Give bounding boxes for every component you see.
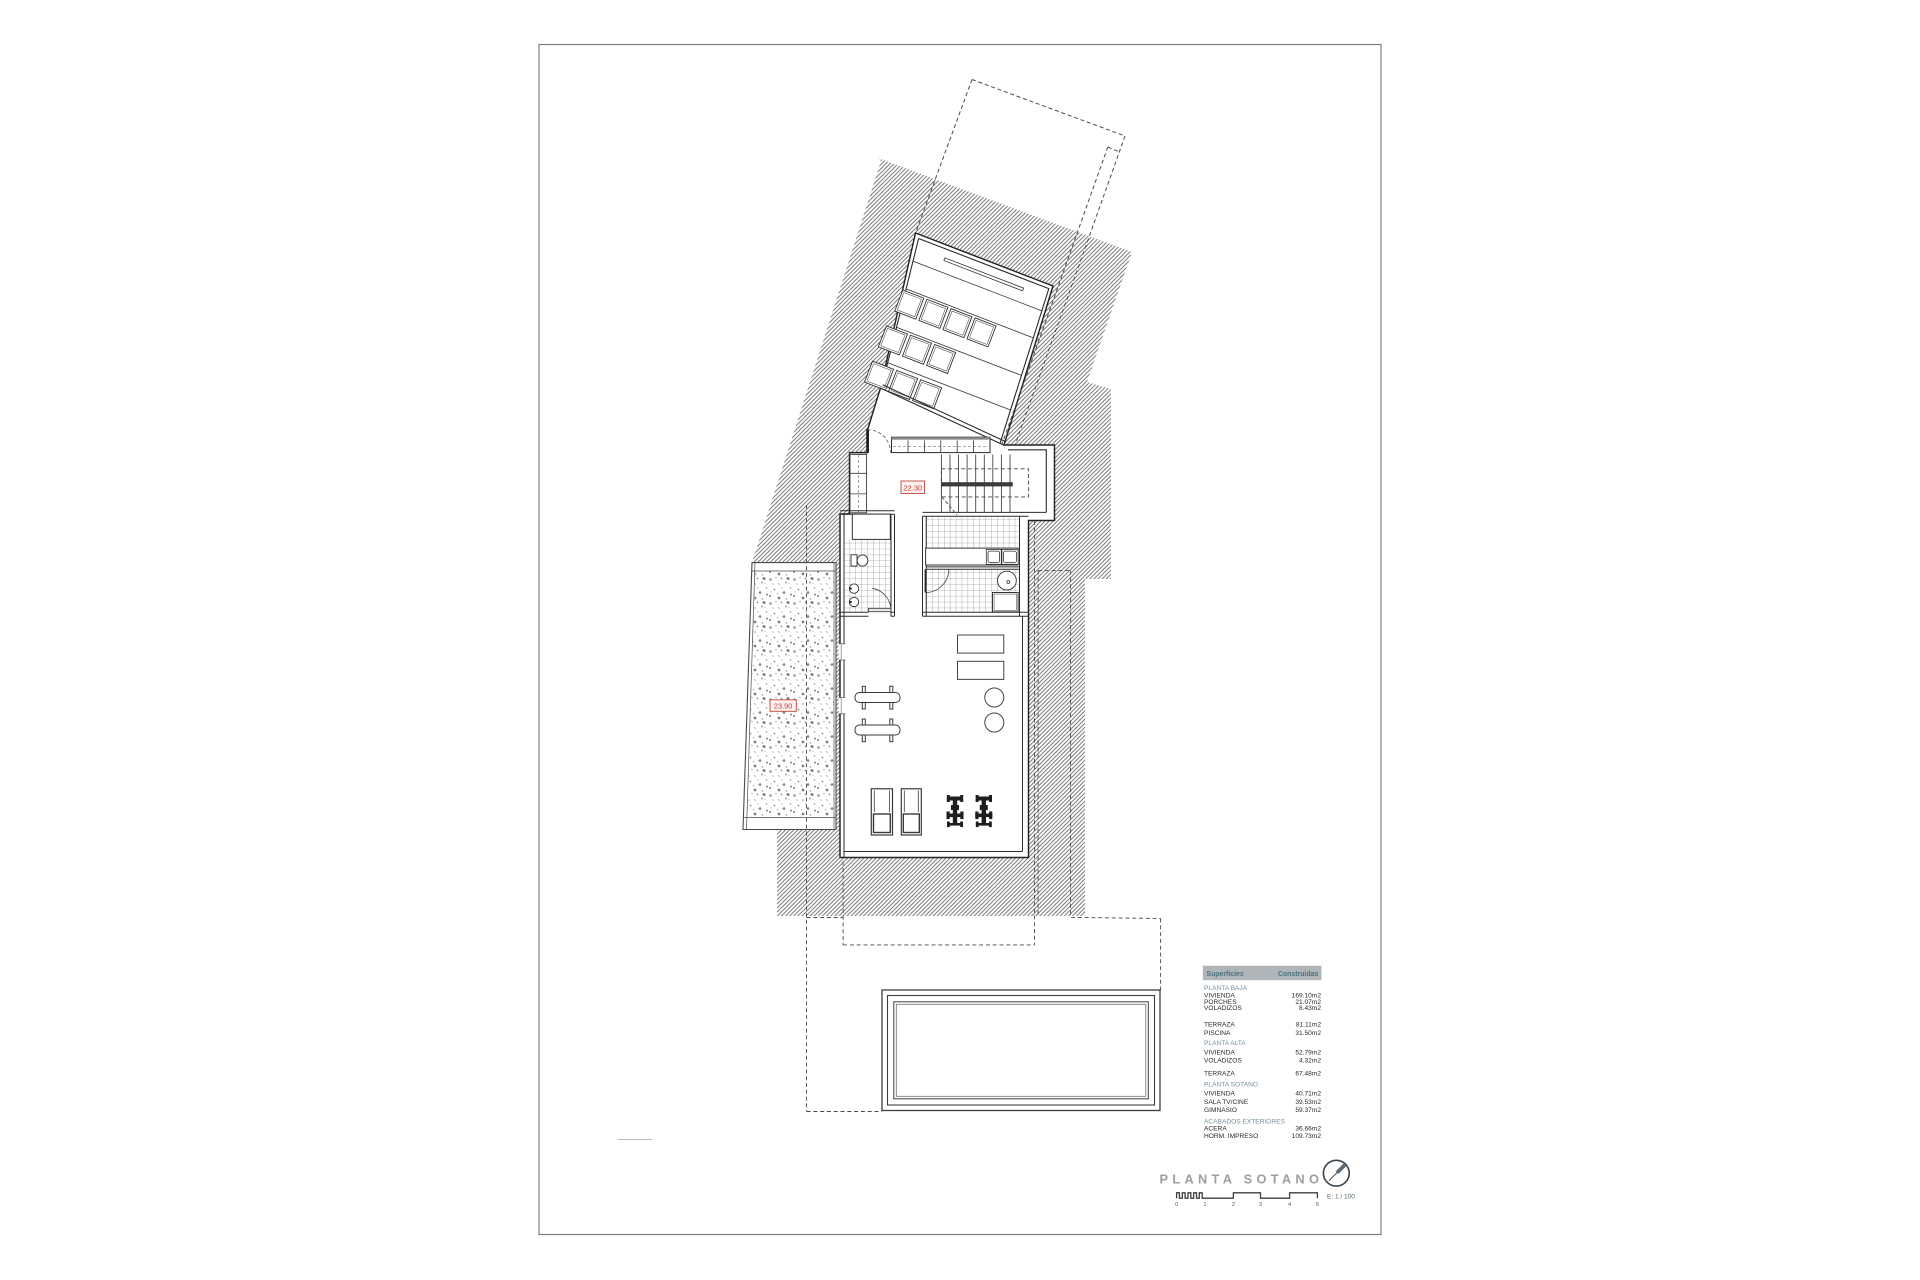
svg-text:SALA TV/CINE: SALA TV/CINE <box>1204 1099 1249 1106</box>
svg-text:VIVIENDA: VIVIENDA <box>1204 1050 1235 1057</box>
svg-text:Superficies: Superficies <box>1207 971 1244 978</box>
svg-text:52.79m2: 52.79m2 <box>1295 1050 1321 1057</box>
svg-text:2: 2 <box>1232 1202 1235 1208</box>
svg-text:VIVIENDA: VIVIENDA <box>1204 1090 1235 1097</box>
svg-text:1: 1 <box>1203 1202 1206 1208</box>
svg-text:PLANTA SOTANO: PLANTA SOTANO <box>1160 1172 1324 1187</box>
svg-text:ACABADOS EXTERIORES: ACABADOS EXTERIORES <box>1204 1118 1286 1125</box>
svg-text:22.30: 22.30 <box>904 483 923 492</box>
svg-text:E: 1 / 100: E: 1 / 100 <box>1327 1194 1355 1201</box>
svg-text:39.53m2: 39.53m2 <box>1295 1099 1321 1106</box>
svg-text:67.48m2: 67.48m2 <box>1295 1071 1321 1078</box>
svg-text:0: 0 <box>1175 1202 1178 1208</box>
svg-text:VOLADIZOS: VOLADIZOS <box>1204 1005 1242 1012</box>
svg-text:GIMNASIO: GIMNASIO <box>1204 1107 1237 1114</box>
svg-text:36.66m2: 36.66m2 <box>1295 1126 1321 1133</box>
svg-text:40.71m2: 40.71m2 <box>1295 1090 1321 1097</box>
svg-text:VOLADIZOS: VOLADIZOS <box>1204 1058 1242 1065</box>
svg-text:PISCINA: PISCINA <box>1204 1030 1231 1037</box>
svg-text:4.32m2: 4.32m2 <box>1299 1058 1321 1065</box>
svg-text:Construidas: Construidas <box>1278 971 1318 978</box>
svg-text:TERRAZA: TERRAZA <box>1204 1021 1235 1028</box>
svg-text:TERRAZA: TERRAZA <box>1204 1071 1235 1078</box>
svg-text:31.50m2: 31.50m2 <box>1295 1030 1321 1037</box>
svg-text:59.37m2: 59.37m2 <box>1295 1107 1321 1114</box>
svg-text:8.43m2: 8.43m2 <box>1299 1005 1321 1012</box>
svg-text:109.73m2: 109.73m2 <box>1292 1133 1322 1140</box>
svg-text:4: 4 <box>1288 1202 1291 1208</box>
svg-text:PLANTA SOTANO: PLANTA SOTANO <box>1204 1081 1258 1088</box>
svg-text:HORM. IMPRESO: HORM. IMPRESO <box>1204 1133 1258 1140</box>
svg-text:81.11m2: 81.11m2 <box>1296 1021 1322 1028</box>
svg-text:ACERA: ACERA <box>1204 1126 1227 1133</box>
svg-text:3: 3 <box>1259 1202 1262 1208</box>
svg-text:PLANTA ALTA: PLANTA ALTA <box>1204 1040 1246 1047</box>
svg-text:23.90: 23.90 <box>774 702 793 711</box>
svg-text:PLANTA BAJA: PLANTA BAJA <box>1204 985 1248 992</box>
svg-text:5: 5 <box>1316 1202 1319 1208</box>
